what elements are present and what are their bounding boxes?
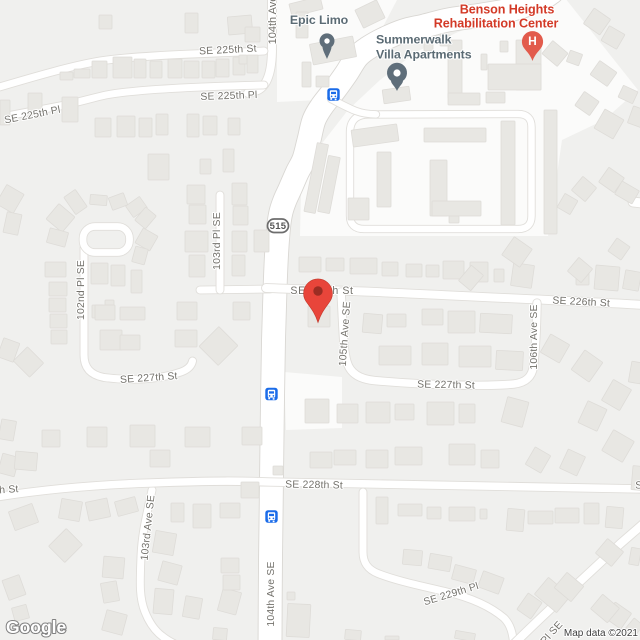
svg-text:102nd Pl SE: 102nd Pl SE: [76, 260, 87, 320]
svg-text:Benson Heights: Benson Heights: [460, 3, 555, 17]
svg-text:Summerwalk: Summerwalk: [376, 33, 452, 47]
svg-text:515: 515: [270, 221, 287, 232]
svg-text:104th Ave SE: 104th Ave SE: [266, 561, 277, 626]
svg-text:H: H: [528, 34, 537, 48]
svg-text:Epic Limo: Epic Limo: [290, 13, 349, 27]
svg-text:SE 228th St: SE 228th St: [285, 479, 343, 491]
svg-text:106th Ave SE: 106th Ave SE: [529, 304, 540, 369]
svg-text:SE 225th Pl: SE 225th Pl: [200, 90, 257, 103]
svg-text:Map data ©2021: Map data ©2021: [564, 628, 639, 639]
svg-text:Rehabilitation Center: Rehabilitation Center: [434, 17, 559, 31]
svg-text:103rd Pl SE: 103rd Pl SE: [212, 212, 223, 270]
svg-text:SE 227th St: SE 227th St: [417, 379, 475, 391]
svg-text:104th Ave: 104th Ave: [267, 0, 279, 44]
svg-text:Google: Google: [6, 617, 67, 637]
svg-text:SE 228th St: SE 228th St: [635, 480, 640, 492]
svg-text:Villa Apartments: Villa Apartments: [376, 48, 472, 62]
